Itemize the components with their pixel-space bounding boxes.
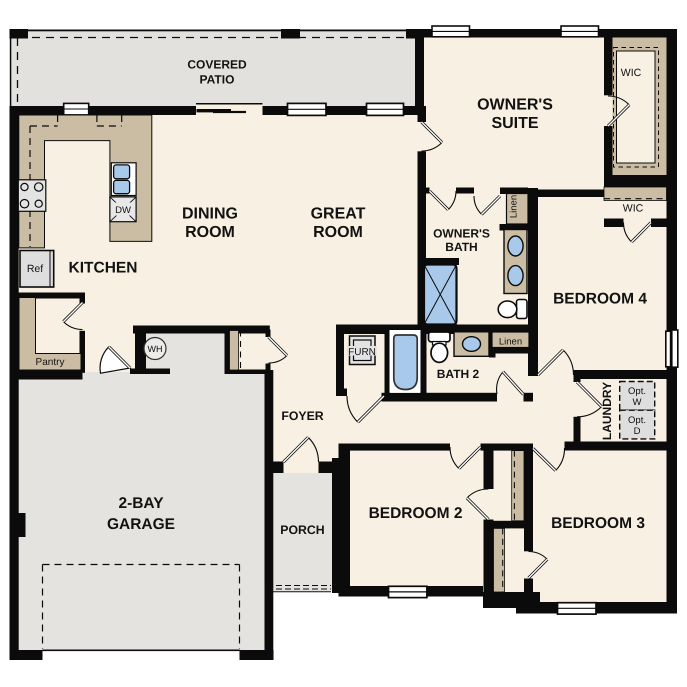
svg-text:BATH: BATH [445, 240, 477, 254]
svg-text:GARAGE: GARAGE [107, 516, 175, 533]
svg-text:FURN: FURN [348, 347, 376, 358]
svg-text:SUITE: SUITE [491, 115, 538, 132]
svg-text:WIC: WIC [623, 203, 644, 215]
svg-text:FOYER: FOYER [281, 409, 323, 423]
svg-text:2-BAY: 2-BAY [118, 495, 164, 512]
svg-text:LAUNDRY: LAUNDRY [600, 382, 614, 440]
svg-text:KITCHEN: KITCHEN [69, 260, 138, 277]
svg-text:Linen: Linen [499, 336, 522, 347]
svg-text:WIC: WIC [621, 67, 642, 79]
svg-text:PATIO: PATIO [200, 72, 235, 86]
svg-text:PORCH: PORCH [280, 523, 325, 537]
svg-text:ROOM: ROOM [313, 224, 363, 241]
svg-text:DINING: DINING [182, 206, 238, 223]
svg-text:GREAT: GREAT [311, 206, 366, 223]
svg-text:BEDROOM 3: BEDROOM 3 [551, 515, 645, 532]
svg-text:Ref: Ref [27, 263, 43, 275]
svg-text:ROOM: ROOM [185, 224, 235, 241]
svg-text:BEDROOM 2: BEDROOM 2 [369, 505, 463, 522]
svg-text:D: D [634, 426, 641, 437]
svg-text:DW: DW [115, 205, 131, 216]
svg-text:Opt.: Opt. [628, 386, 646, 397]
svg-text:WH: WH [148, 344, 163, 354]
svg-text:BEDROOM 4: BEDROOM 4 [553, 291, 647, 308]
svg-text:Pantry: Pantry [36, 357, 65, 368]
svg-text:Linen: Linen [509, 195, 520, 218]
svg-text:Opt.: Opt. [628, 415, 646, 426]
svg-text:COVERED: COVERED [187, 57, 247, 71]
svg-text:BATH 2: BATH 2 [437, 367, 480, 381]
svg-text:OWNER'S: OWNER'S [477, 97, 553, 114]
svg-text:W: W [633, 397, 642, 408]
svg-text:OWNER'S: OWNER'S [433, 226, 490, 240]
